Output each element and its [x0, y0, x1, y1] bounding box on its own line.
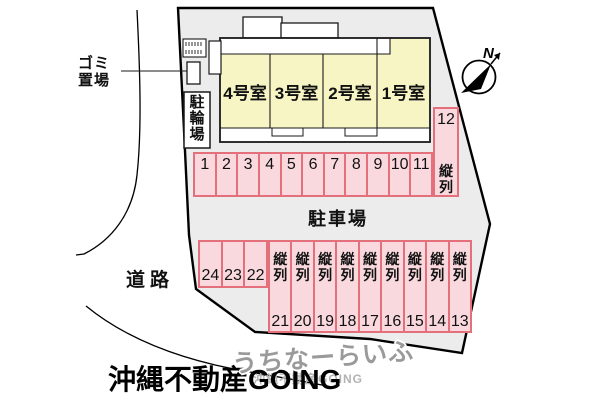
parking-space-18: 縦列18 [335, 242, 357, 331]
parking-space-number: 3 [238, 156, 258, 174]
porch-step [345, 128, 377, 136]
parking-space-9: 9 [366, 154, 388, 195]
parking-space-23: 23 [221, 242, 244, 286]
compass-icon: N [461, 45, 500, 94]
parking-space-number: 23 [223, 267, 244, 285]
road-label: 道路 [126, 265, 174, 292]
parking-space-number: 19 [315, 313, 335, 331]
room-3-label: 3号室 [275, 79, 318, 104]
bicycle-parking-label: 駐輪場 [185, 95, 209, 143]
parking-space-8: 8 [344, 154, 366, 195]
parking-space-number: 9 [368, 156, 388, 174]
parking-space-11: 11 [409, 154, 431, 195]
parking-space-number: 11 [411, 156, 431, 174]
parking-space-number: 18 [337, 313, 357, 331]
parking-space-number: 20 [292, 313, 312, 331]
parking-space-number: 12 [435, 111, 457, 129]
parking-space-number: 15 [405, 313, 425, 331]
stairs-icon [183, 39, 206, 57]
garbage-box [187, 62, 200, 84]
parking-space-14: 縦列14 [425, 242, 447, 331]
tandem-label: 縦列 [385, 251, 400, 283]
site-plan: N ゴミ 置場 駐輪場 道路 駐車場 4号室 3号室 2号室 1号室 12345… [0, 0, 600, 400]
roof-structure [281, 23, 338, 38]
parking-space-12: 12 縦列 [433, 107, 459, 197]
road-edge-line [76, 10, 140, 255]
parking-space-17: 縦列17 [358, 242, 380, 331]
parking-space-2: 2 [215, 154, 237, 195]
building-rooms: 4号室 3号室 2号室 1号室 [220, 54, 430, 128]
parking-space-22: 22 [243, 242, 266, 286]
parking-space-3: 3 [236, 154, 258, 195]
roof-structure [243, 17, 282, 38]
parking-row-1: 1234567891011 [193, 152, 433, 197]
parking-row-2-tandem: 縦列21縦列20縦列19縦列18縦列17縦列16縦列15縦列14縦列13 [268, 240, 472, 333]
parking-space-19: 縦列19 [313, 242, 335, 331]
tandem-label: 縦列 [340, 251, 355, 283]
tandem-label: 縦列 [362, 251, 377, 283]
room-3: 3号室 [270, 54, 323, 128]
parking-space-number: 21 [270, 313, 290, 331]
parking-space-1: 1 [195, 154, 215, 195]
garbage-area-label: ゴミ 置場 [78, 55, 110, 89]
parking-space-number: 8 [346, 156, 366, 174]
parking-space-5: 5 [280, 154, 302, 195]
room-1: 1号室 [377, 54, 430, 128]
porch-step [272, 128, 303, 136]
parking-space-number: 17 [360, 313, 380, 331]
parking-space-number: 6 [303, 156, 323, 174]
tandem-label: 縦列 [318, 251, 333, 283]
parking-space-number: 10 [390, 156, 410, 174]
parking-space-number: 1 [195, 156, 215, 174]
garbage-area-label-line2: 置場 [78, 72, 110, 89]
tandem-label: 縦列 [439, 163, 454, 195]
parking-space-number: 2 [217, 156, 237, 174]
parking-space-21: 縦列21 [270, 242, 290, 331]
room-1-label: 1号室 [382, 79, 425, 104]
tandem-label: 縦列 [430, 251, 445, 283]
parking-space-7: 7 [323, 154, 345, 195]
parking-lot-label: 駐車場 [278, 205, 398, 231]
parking-space-4: 4 [258, 154, 280, 195]
room-2: 2号室 [323, 54, 377, 128]
tandem-label: 縦列 [407, 251, 422, 283]
parking-space-6: 6 [301, 154, 323, 195]
parking-space-24: 24 [200, 242, 221, 286]
room-2-label: 2号室 [328, 79, 371, 104]
parking-row-2-short: 242322 [198, 240, 268, 288]
parking-space-16: 縦列16 [380, 242, 402, 331]
parking-space-number: 7 [325, 156, 345, 174]
compass-north-label: N [483, 45, 495, 62]
garbage-area-label-line1: ゴミ [78, 55, 110, 72]
parking-space-number: 4 [260, 156, 280, 174]
parking-space-number: 13 [450, 313, 470, 331]
parking-space-number: 16 [382, 313, 402, 331]
parking-space-number: 14 [427, 313, 447, 331]
parking-space-20: 縦列20 [290, 242, 312, 331]
tandem-label: 縦列 [295, 251, 310, 283]
room-4-label: 4号室 [223, 79, 266, 104]
parking-space-number: 22 [245, 267, 266, 285]
parking-space-13: 縦列13 [448, 242, 470, 331]
parking-space-number: 5 [282, 156, 302, 174]
parking-space-number: 24 [200, 267, 221, 285]
tandem-label: 縦列 [273, 251, 288, 283]
tandem-label: 縦列 [452, 251, 467, 283]
parking-space-15: 縦列15 [403, 242, 425, 331]
parking-space-10: 10 [388, 154, 410, 195]
room-4: 4号室 [220, 54, 270, 128]
building-rooms-area [390, 39, 429, 55]
